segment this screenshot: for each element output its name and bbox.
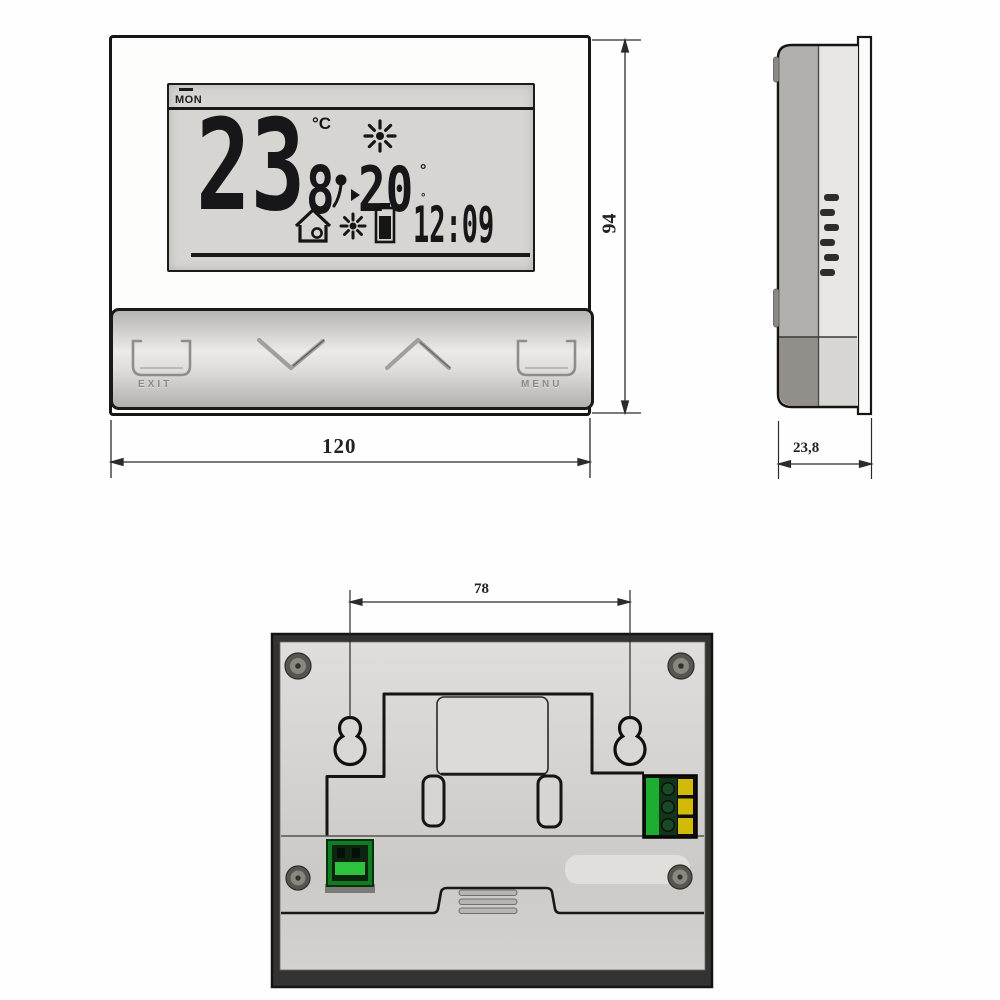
side-clip-top — [774, 57, 780, 82]
dimension-depth-label: 23,8 — [793, 440, 819, 457]
dimension-height-label: 94 — [599, 214, 622, 234]
side-view — [755, 25, 895, 490]
back-panel — [280, 642, 705, 970]
dimension-hole-spacing-label: 78 — [474, 581, 489, 598]
terminal-block — [643, 775, 697, 838]
wall-plate — [858, 37, 871, 414]
dimensional-drawing: MON 23 °C 8 20 ° ° 12:09 — [0, 0, 1000, 1000]
back-view — [255, 575, 720, 995]
side-clip-bottom — [774, 289, 780, 327]
front-dimension-lines — [90, 30, 650, 490]
keyhole-mount-left — [335, 718, 365, 765]
clip-slot-left — [423, 776, 444, 826]
vent-slots — [459, 890, 517, 914]
keyhole-mount-right — [615, 718, 645, 765]
power-connector — [325, 840, 375, 893]
clip-slot-right — [538, 776, 561, 827]
dimension-width-label: 120 — [322, 434, 357, 459]
center-block — [437, 697, 548, 775]
